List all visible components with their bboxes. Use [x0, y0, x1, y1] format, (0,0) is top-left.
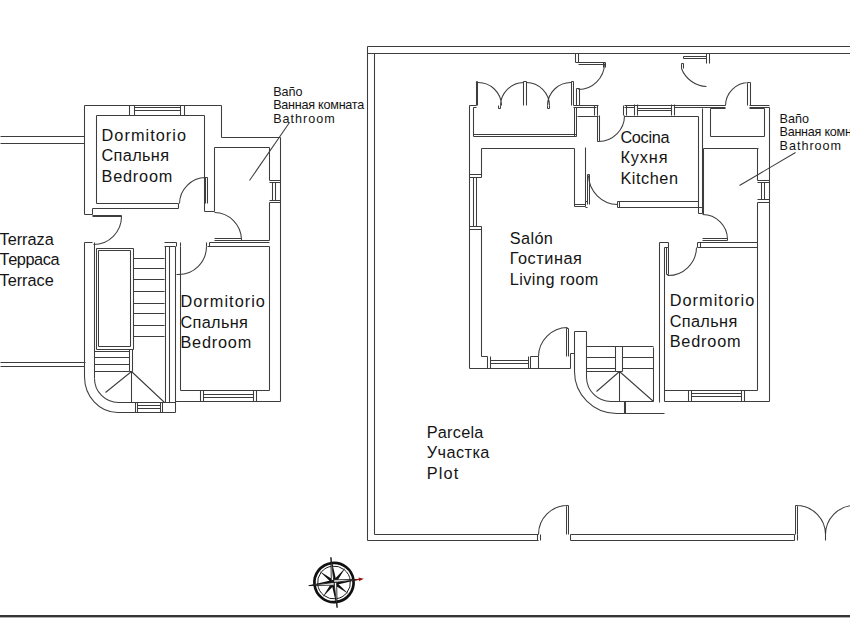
svg-text:Участка: Участка [427, 443, 491, 461]
svg-text:Спальня: Спальня [670, 312, 738, 330]
svg-text:Baño: Baño [273, 85, 302, 99]
svg-text:Спальня: Спальня [102, 146, 170, 164]
svg-text:Terraza: Terraza [0, 230, 55, 248]
svg-text:Cocina: Cocina [620, 128, 670, 146]
svg-text:Dormitorio: Dormitorio [180, 292, 266, 310]
svg-text:Bedroom: Bedroom [180, 333, 252, 351]
svg-text:Bathroom: Bathroom [780, 139, 843, 153]
svg-text:Bedroom: Bedroom [102, 167, 174, 185]
svg-text:Гостиная: Гостиная [510, 249, 583, 267]
svg-text:Salón: Salón [510, 229, 554, 247]
svg-text:Terrace: Terrace [0, 271, 54, 289]
svg-text:Kitchen: Kitchen [620, 169, 678, 187]
svg-text:Baño: Baño [780, 112, 809, 126]
svg-text:Dormitorio: Dormitorio [102, 126, 188, 144]
svg-text:Dormitorio: Dormitorio [670, 291, 756, 309]
svg-text:Bedroom: Bedroom [670, 332, 742, 350]
svg-text:Ванная комната: Ванная комната [273, 98, 364, 112]
svg-text:Спальня: Спальня [180, 313, 248, 331]
svg-text:Parcela: Parcela [427, 423, 485, 441]
svg-text:Терраса: Терраса [0, 250, 60, 268]
svg-text:Кухня: Кухня [620, 148, 668, 166]
svg-text:Plot: Plot [427, 464, 460, 482]
svg-text:Ванная комната: Ванная комната [780, 125, 850, 139]
svg-text:Bathroom: Bathroom [273, 112, 336, 126]
svg-text:Living room: Living room [510, 270, 599, 288]
